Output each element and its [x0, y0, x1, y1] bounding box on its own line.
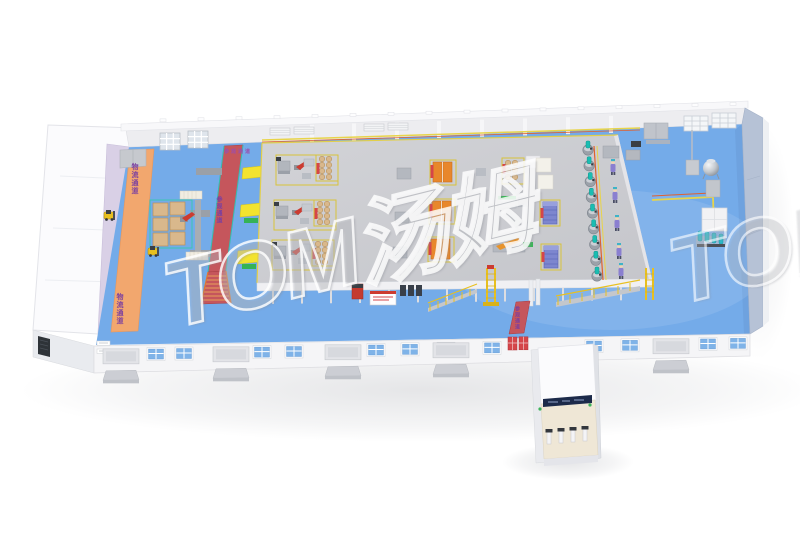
factory-3d-render: 物流通道 物流通道 参观通道 参观通道 参观通道 TOM汤姆 TOM — [0, 0, 800, 559]
dock-ramp — [433, 364, 469, 374]
roof-tick — [198, 118, 204, 121]
front-window — [285, 345, 303, 358]
worker-leg — [619, 276, 621, 279]
mixer-agitator — [589, 188, 593, 195]
platform-post — [272, 291, 274, 304]
wall-pilaster — [566, 117, 570, 134]
worker-cap — [617, 243, 621, 245]
front-window — [147, 348, 165, 361]
dock-ramp-face — [325, 376, 361, 380]
front-window — [729, 337, 747, 350]
front-window — [699, 337, 717, 350]
worker-body — [619, 268, 624, 276]
garage-door — [38, 336, 50, 357]
mixer-panel — [591, 163, 593, 165]
roof-tick — [350, 113, 356, 116]
dock-ramp-face — [213, 378, 249, 382]
wall-pilaster — [437, 121, 441, 138]
worker-leg — [620, 256, 622, 259]
mixer-agitator — [592, 220, 596, 227]
roof-tick — [312, 114, 318, 117]
mixer-agitator — [588, 173, 592, 180]
mixer-agitator — [595, 267, 599, 274]
roof-tick — [502, 109, 508, 112]
roof-tick — [540, 108, 546, 111]
mixer-agitator — [587, 157, 591, 164]
dock-door-panel — [106, 351, 136, 361]
dock-ramp — [213, 368, 249, 378]
roof-tick — [692, 103, 698, 106]
roof-tick — [654, 105, 660, 108]
worker-leg — [617, 256, 619, 259]
logistics-aisle-label: 物流通道 — [116, 293, 123, 325]
dock-ramp-face — [103, 380, 139, 384]
dock-ramp — [103, 370, 139, 380]
front-window — [483, 341, 501, 354]
roof-tick — [426, 111, 432, 114]
electrical-cabinet — [429, 199, 455, 224]
wall-pilaster — [352, 123, 356, 140]
platform-post — [301, 291, 303, 304]
worker-leg — [614, 172, 616, 175]
green-top-machine — [498, 196, 528, 208]
wall-pilaster — [523, 118, 527, 135]
front-window — [367, 344, 385, 357]
roof-tick — [616, 106, 622, 109]
dock-door-panel — [216, 349, 246, 359]
roof-tick — [730, 102, 736, 105]
visitor-walkway-label: 参观通道 — [215, 196, 221, 224]
front-window — [175, 347, 193, 360]
mixer-panel — [598, 258, 600, 260]
roof-tick — [578, 107, 584, 110]
violet-pallet-stack — [541, 244, 561, 270]
worker-cap — [613, 187, 617, 189]
exit-aisle-label: 参观通道 — [514, 306, 519, 330]
logistics-aisle-label: 物流通道 — [131, 163, 138, 195]
worker-leg — [616, 200, 618, 203]
wall-pilaster — [609, 116, 613, 133]
platform-post — [533, 288, 535, 301]
worker-body — [613, 192, 618, 200]
roof-tick — [236, 117, 242, 120]
worker-cap — [615, 215, 619, 217]
entrance-annex — [531, 344, 601, 466]
worker-cap — [611, 159, 615, 161]
dock-door-panel — [328, 347, 358, 357]
front-window — [401, 343, 419, 356]
pallet-slots — [400, 285, 422, 296]
worker-body — [615, 220, 620, 228]
indicator-green — [588, 403, 591, 406]
front-window — [621, 339, 639, 352]
green-conveyor-segment — [244, 218, 258, 223]
gray-unit — [686, 160, 699, 175]
roof-tick — [160, 119, 166, 122]
wall-pilaster — [480, 120, 484, 137]
dock-ramp-face — [433, 374, 469, 378]
mixer-agitator — [593, 236, 597, 243]
worker-cap — [619, 263, 623, 265]
worker-leg — [615, 228, 617, 231]
worker-leg — [622, 276, 624, 279]
worker-leg — [613, 200, 615, 203]
mixer-panel — [593, 195, 595, 197]
dock-door-panel — [656, 341, 686, 351]
dock-ramp — [325, 366, 361, 376]
worker-leg — [618, 228, 620, 231]
mixer-agitator — [594, 251, 598, 258]
mixer-panel — [590, 148, 592, 150]
white-enclosure — [702, 208, 727, 231]
mixer-panel — [597, 242, 599, 244]
indicator-green — [538, 407, 541, 410]
roof-tick — [464, 110, 470, 113]
scene-canvas — [0, 0, 800, 559]
roof-tick — [274, 116, 280, 119]
annex-roof — [538, 344, 596, 404]
worker-body — [617, 248, 622, 256]
visitor-walkway-label: 参观通道 — [224, 148, 252, 155]
mixer-panel — [599, 274, 601, 276]
worker-body — [611, 164, 616, 172]
platform-post — [330, 290, 332, 303]
roof-tick — [388, 112, 394, 115]
mixer-panel — [596, 226, 598, 228]
front-window — [253, 346, 271, 359]
violet-pallet-stack — [540, 200, 560, 226]
electrical-cabinet — [430, 160, 456, 185]
mixer-panel — [595, 211, 597, 213]
gray-cabinet — [706, 180, 720, 197]
mixer-agitator — [586, 141, 590, 148]
mixer-agitator — [591, 204, 595, 211]
cart — [476, 168, 486, 176]
dock-ramp — [653, 360, 689, 370]
mixer-panel — [592, 179, 594, 181]
worker-leg — [611, 172, 613, 175]
dock-door-panel — [436, 345, 466, 355]
platform-post — [504, 289, 506, 302]
electrical-cabinet — [428, 237, 454, 262]
dock-ramp-face — [653, 370, 689, 374]
green-conveyor-segment — [242, 264, 256, 269]
info-signboard — [370, 291, 396, 305]
